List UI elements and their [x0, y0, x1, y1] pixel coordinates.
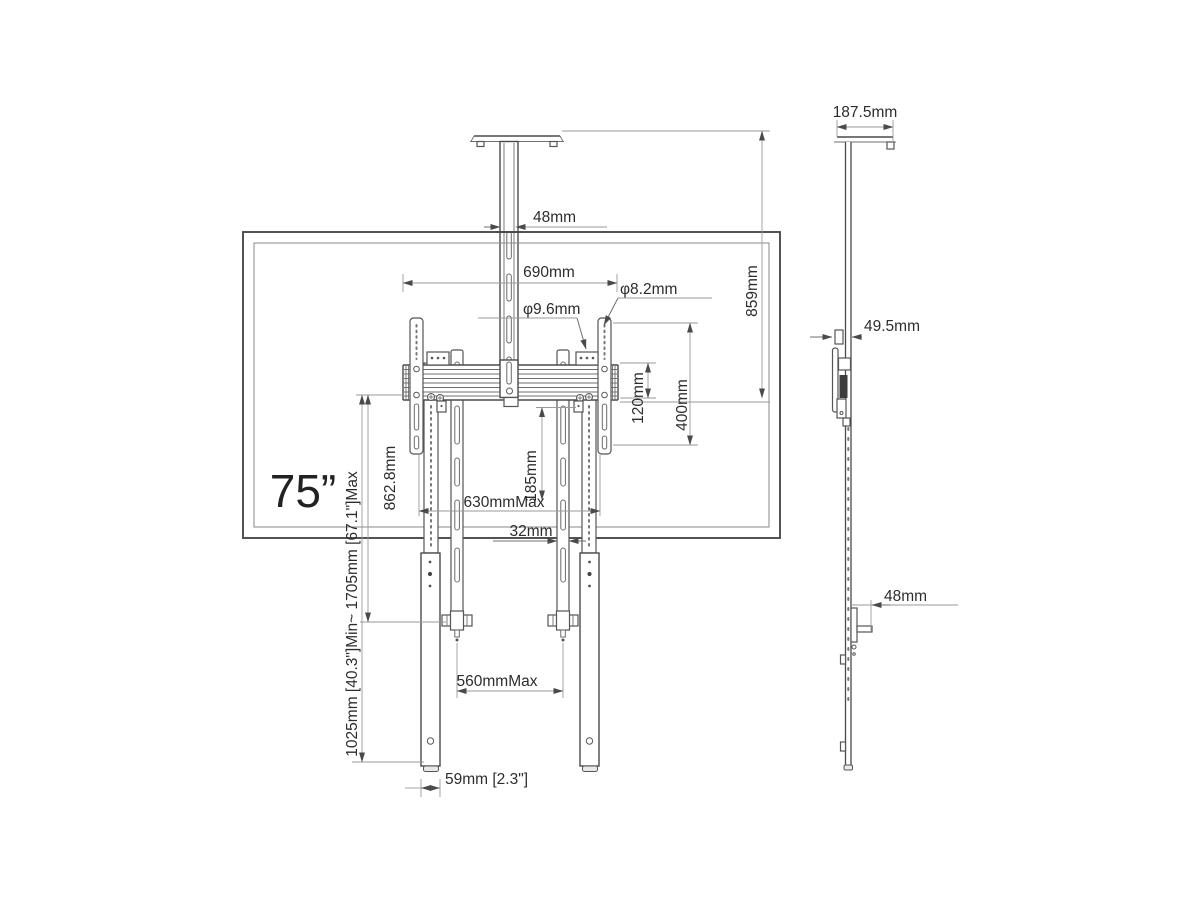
dim-hook-offset: 48mm — [852, 588, 958, 631]
tv-size-label: 75” — [270, 465, 336, 517]
dim-hole-small-label: φ8.2mm — [620, 281, 677, 298]
dim-upright-length-label: 862.8mm — [382, 446, 399, 511]
left-rail-bracket — [427, 352, 449, 365]
side-foot — [844, 765, 853, 770]
dim-plate-depth: 187.5mm — [833, 104, 898, 141]
dim-leg-width-label: 59mm [2.3"] — [445, 771, 528, 788]
side-view: 187.5mm 49.5mm 48mm — [810, 104, 958, 770]
side-hook-bracket — [851, 608, 872, 655]
dim-strap-spread-label: 630mmMax — [464, 494, 545, 511]
left-outer-strap — [410, 318, 423, 454]
dim-height-range-label: 1025mm [40.3"]Min~ 1705mm [67.1"]Max — [344, 471, 361, 757]
dim-drop-height-label: 859mm — [744, 265, 761, 317]
dim-leg-spread-label: 560mmMax — [457, 673, 538, 690]
side-ceiling-plate — [834, 137, 896, 149]
tv-mount-technical-drawing: 75” — [0, 0, 1200, 900]
dim-pole-width-label: 48mm — [533, 209, 576, 226]
dim-mount-depth: 49.5mm — [810, 318, 920, 337]
left-leg — [421, 553, 440, 772]
front-view: 75” — [243, 131, 780, 797]
right-foot — [583, 766, 598, 772]
dim-hole-large: φ9.6mm — [478, 301, 586, 349]
dim-leg-width: 59mm [2.3"] — [405, 771, 528, 797]
dim-leg-spread: 560mmMax — [457, 643, 563, 698]
right-outer-strap — [598, 318, 611, 454]
dim-vesa-height: 400mm — [613, 323, 698, 445]
dim-rail-height: 120mm — [620, 363, 656, 424]
left-foot — [424, 766, 439, 772]
dim-strap-spread: 630mmMax — [419, 455, 600, 516]
ceiling-pole — [500, 142, 518, 398]
right-rail-bracket — [576, 352, 598, 365]
right-leg — [580, 553, 599, 772]
left-strap-clamp — [442, 611, 472, 642]
dim-hole-small: φ8.2mm — [604, 281, 712, 325]
dim-hook-offset-label: 48mm — [884, 588, 927, 605]
side-pole-and-leg — [841, 142, 853, 770]
dim-plate-depth-label: 187.5mm — [833, 104, 898, 121]
dim-rail-height-label: 120mm — [630, 372, 647, 424]
dim-hole-large-label: φ9.6mm — [523, 301, 580, 318]
dim-rail-width-label: 690mm — [523, 264, 575, 281]
dim-strap-width-label: 32mm — [509, 523, 552, 540]
right-strap-clamp — [548, 611, 578, 642]
dim-mount-depth-label: 49.5mm — [864, 318, 920, 335]
dim-vesa-height-label: 400mm — [674, 379, 691, 431]
